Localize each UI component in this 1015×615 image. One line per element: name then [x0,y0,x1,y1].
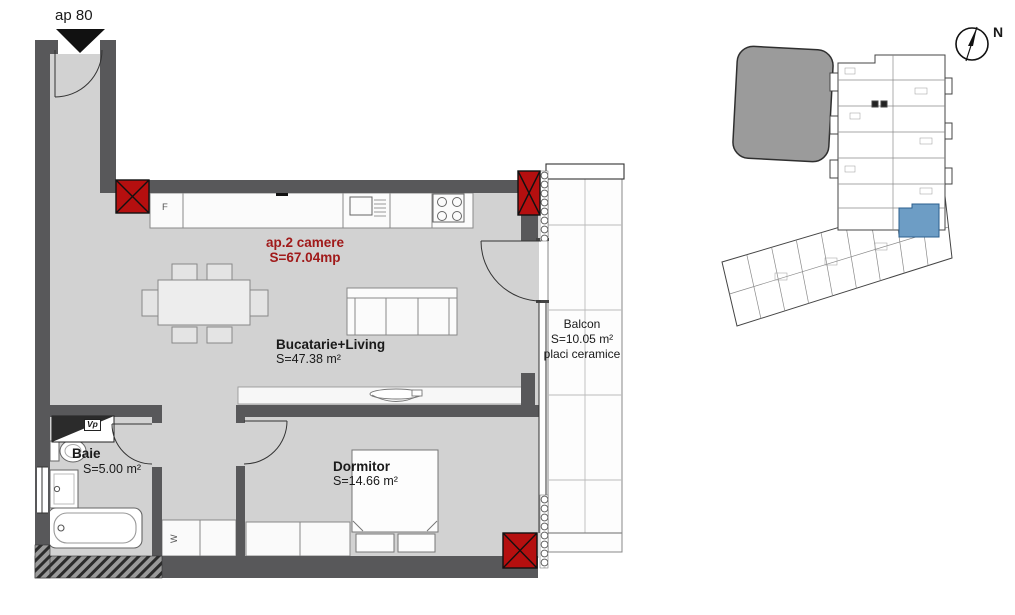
entrance-apartment-label: ap 80 [55,7,93,24]
highlighted-unit [899,204,939,237]
bedroom-wardrobe [246,522,350,556]
chair [250,290,268,316]
column [518,171,540,215]
chair [207,327,232,343]
hatched-exterior-wall-left [35,545,50,578]
stair-core [872,101,878,107]
floorplan-page: ap 80 ap.2 camere S=67.04mp Bucatarie+Li… [0,0,1015,615]
console-table [238,387,528,404]
stair-core [881,101,887,107]
pillow [398,534,435,552]
site-plan [715,18,1015,348]
room-area-balcony: S=10.05 m² [527,333,637,347]
kitchen-counter [150,193,473,228]
room-name-bathroom: Baie [72,446,101,462]
fridge-marker: F [162,203,168,214]
apartment-area: S=67.04mp [245,250,365,266]
bathtub-icon [48,508,142,548]
room-name-living: Bucatarie+Living [276,337,385,353]
apartment-plan-drawing [0,0,660,615]
table-top [158,280,250,325]
room-area-bedroom: S=14.66 m² [333,474,398,488]
north-arrow-icon [956,27,988,61]
balcony-rail [546,164,624,179]
balcony-finish-note: placi ceramice [527,348,637,362]
column [116,180,149,213]
apartment-title: ap.2 camere [245,235,365,251]
room-area-living: S=47.38 m² [276,352,341,366]
sofa [347,288,457,335]
sink-icon [350,197,372,215]
column [503,533,537,568]
room-name-balcony: Balcon [527,318,637,332]
insulation-strip [540,171,548,241]
floor-areas [50,54,539,558]
chair [207,264,232,280]
room-area-bathroom: S=5.00 m² [83,462,141,476]
stove-icon [433,194,464,222]
chair [172,327,197,343]
hatched-exterior-wall [35,556,162,578]
insulation-strip [540,495,548,568]
bathroom-window [37,467,48,513]
room-name-bedroom: Dormitor [333,459,390,475]
wardrobe-marker: W [169,535,179,544]
ventilation-shaft [52,416,114,442]
chair [142,290,158,316]
site-building-blob [732,46,834,163]
ventilation-marker: Vp [84,419,101,431]
north-label: N [993,24,1003,40]
pillow [356,534,394,552]
washing-machine-icon [50,470,78,508]
chair [172,264,197,280]
